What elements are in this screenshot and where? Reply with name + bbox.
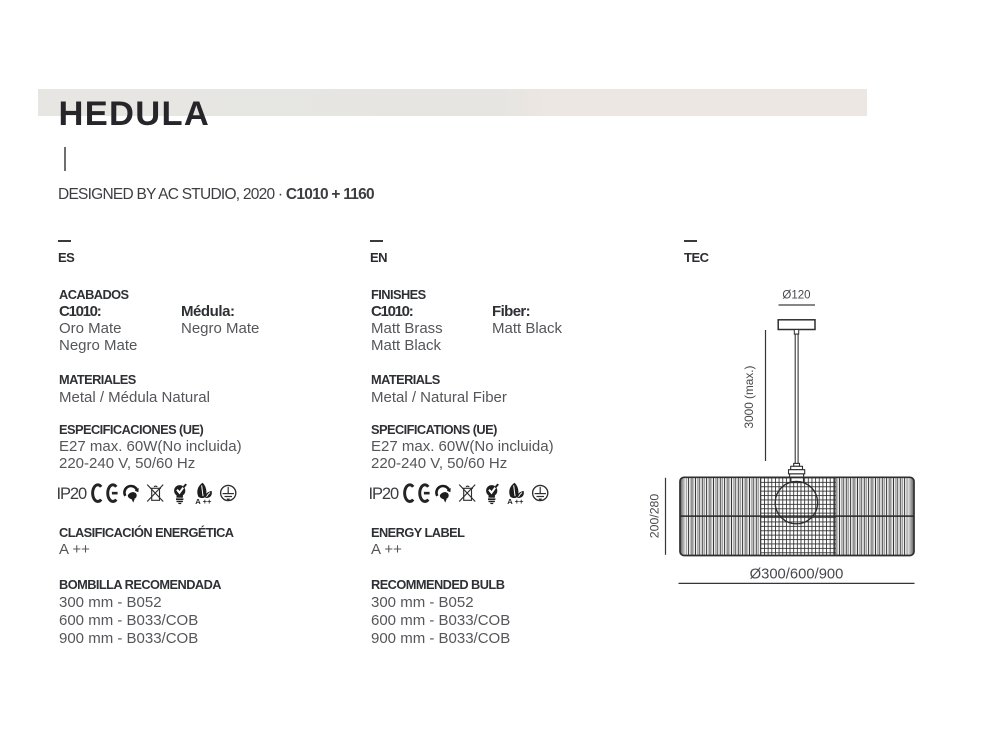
svg-text:Ø300/600/900: Ø300/600/900 — [750, 567, 844, 583]
svg-text:IP20: IP20 — [369, 485, 399, 503]
svg-text:200/280: 200/280 — [648, 494, 662, 539]
svg-text:Ø120: Ø120 — [782, 290, 810, 302]
svg-text:A ++: A ++ — [195, 497, 212, 506]
svg-text:3000 (max.): 3000 (max.) — [742, 365, 756, 428]
svg-text:IP20: IP20 — [57, 485, 87, 503]
svg-text:A ++: A ++ — [507, 497, 524, 506]
